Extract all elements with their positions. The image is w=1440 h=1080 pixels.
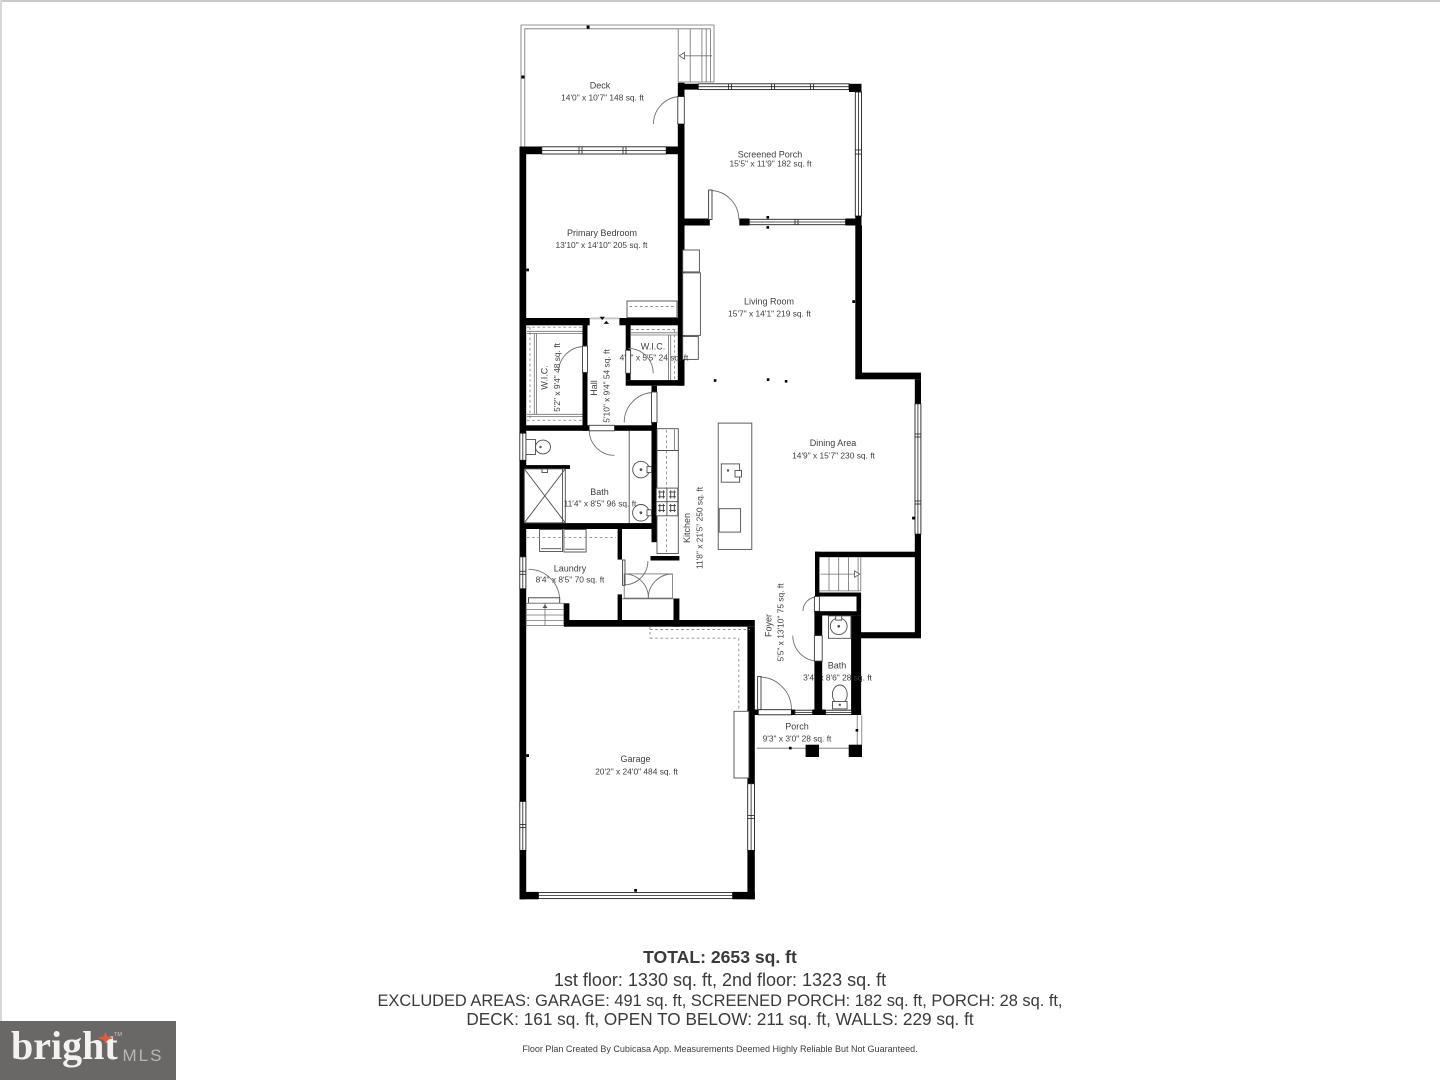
svg-text:20'2" x 24'0" 484 sq. ft: 20'2" x 24'0" 484 sq. ft (595, 767, 678, 777)
svg-text:14'0" x 10'7" 148 sq. ft: 14'0" x 10'7" 148 sq. ft (561, 93, 644, 103)
svg-text:14'9" x 15'7" 230 sq. ft: 14'9" x 15'7" 230 sq. ft (792, 451, 875, 461)
svg-text:Primary Bedroom: Primary Bedroom (567, 228, 637, 238)
svg-text:W.I.C.: W.I.C. (641, 342, 666, 352)
svg-text:5'2" x 9'4" 48 sq. ft: 5'2" x 9'4" 48 sq. ft (552, 342, 562, 411)
svg-text:Laundry: Laundry (554, 564, 587, 574)
svg-text:Living Room: Living Room (744, 297, 794, 307)
svg-text:11'8" x 21'5" 250 sq. ft: 11'8" x 21'5" 250 sq. ft (695, 486, 705, 569)
svg-text:13'10" x 14'10" 205 sq. ft: 13'10" x 14'10" 205 sq. ft (555, 240, 648, 250)
svg-text:Foyer: Foyer (764, 614, 774, 637)
svg-text:8'4" x 8'5" 70 sq. ft: 8'4" x 8'5" 70 sq. ft (536, 575, 605, 585)
svg-text:9'3" x 3'0" 28 sq. ft: 9'3" x 3'0" 28 sq. ft (763, 734, 832, 744)
svg-text:Bath: Bath (828, 661, 847, 671)
svg-text:Bath: Bath (590, 487, 609, 497)
svg-text:15'5" x 11'9" 182 sq. ft: 15'5" x 11'9" 182 sq. ft (729, 159, 812, 169)
svg-text:Hall: Hall (589, 380, 599, 396)
svg-text:Kitchen: Kitchen (682, 513, 692, 543)
svg-text:Garage: Garage (620, 754, 650, 764)
svg-text:5'10" x 9'4" 54 sq. ft: 5'10" x 9'4" 54 sq. ft (602, 349, 612, 423)
svg-text:Dining Area: Dining Area (810, 438, 857, 448)
svg-text:11'4" x 8'5" 96 sq. ft: 11'4" x 8'5" 96 sq. ft (564, 499, 637, 509)
svg-text:Deck: Deck (590, 81, 611, 91)
svg-text:15'7" x 14'1" 219 sq. ft: 15'7" x 14'1" 219 sq. ft (728, 309, 811, 319)
svg-text:W.I.C.: W.I.C. (540, 365, 550, 390)
svg-text:Porch: Porch (785, 722, 809, 732)
svg-text:3'4" x 8'6" 28 sq. ft: 3'4" x 8'6" 28 sq. ft (803, 673, 872, 683)
svg-text:5'5" x 13'10" 75 sq. ft: 5'5" x 13'10" 75 sq. ft (776, 583, 786, 662)
